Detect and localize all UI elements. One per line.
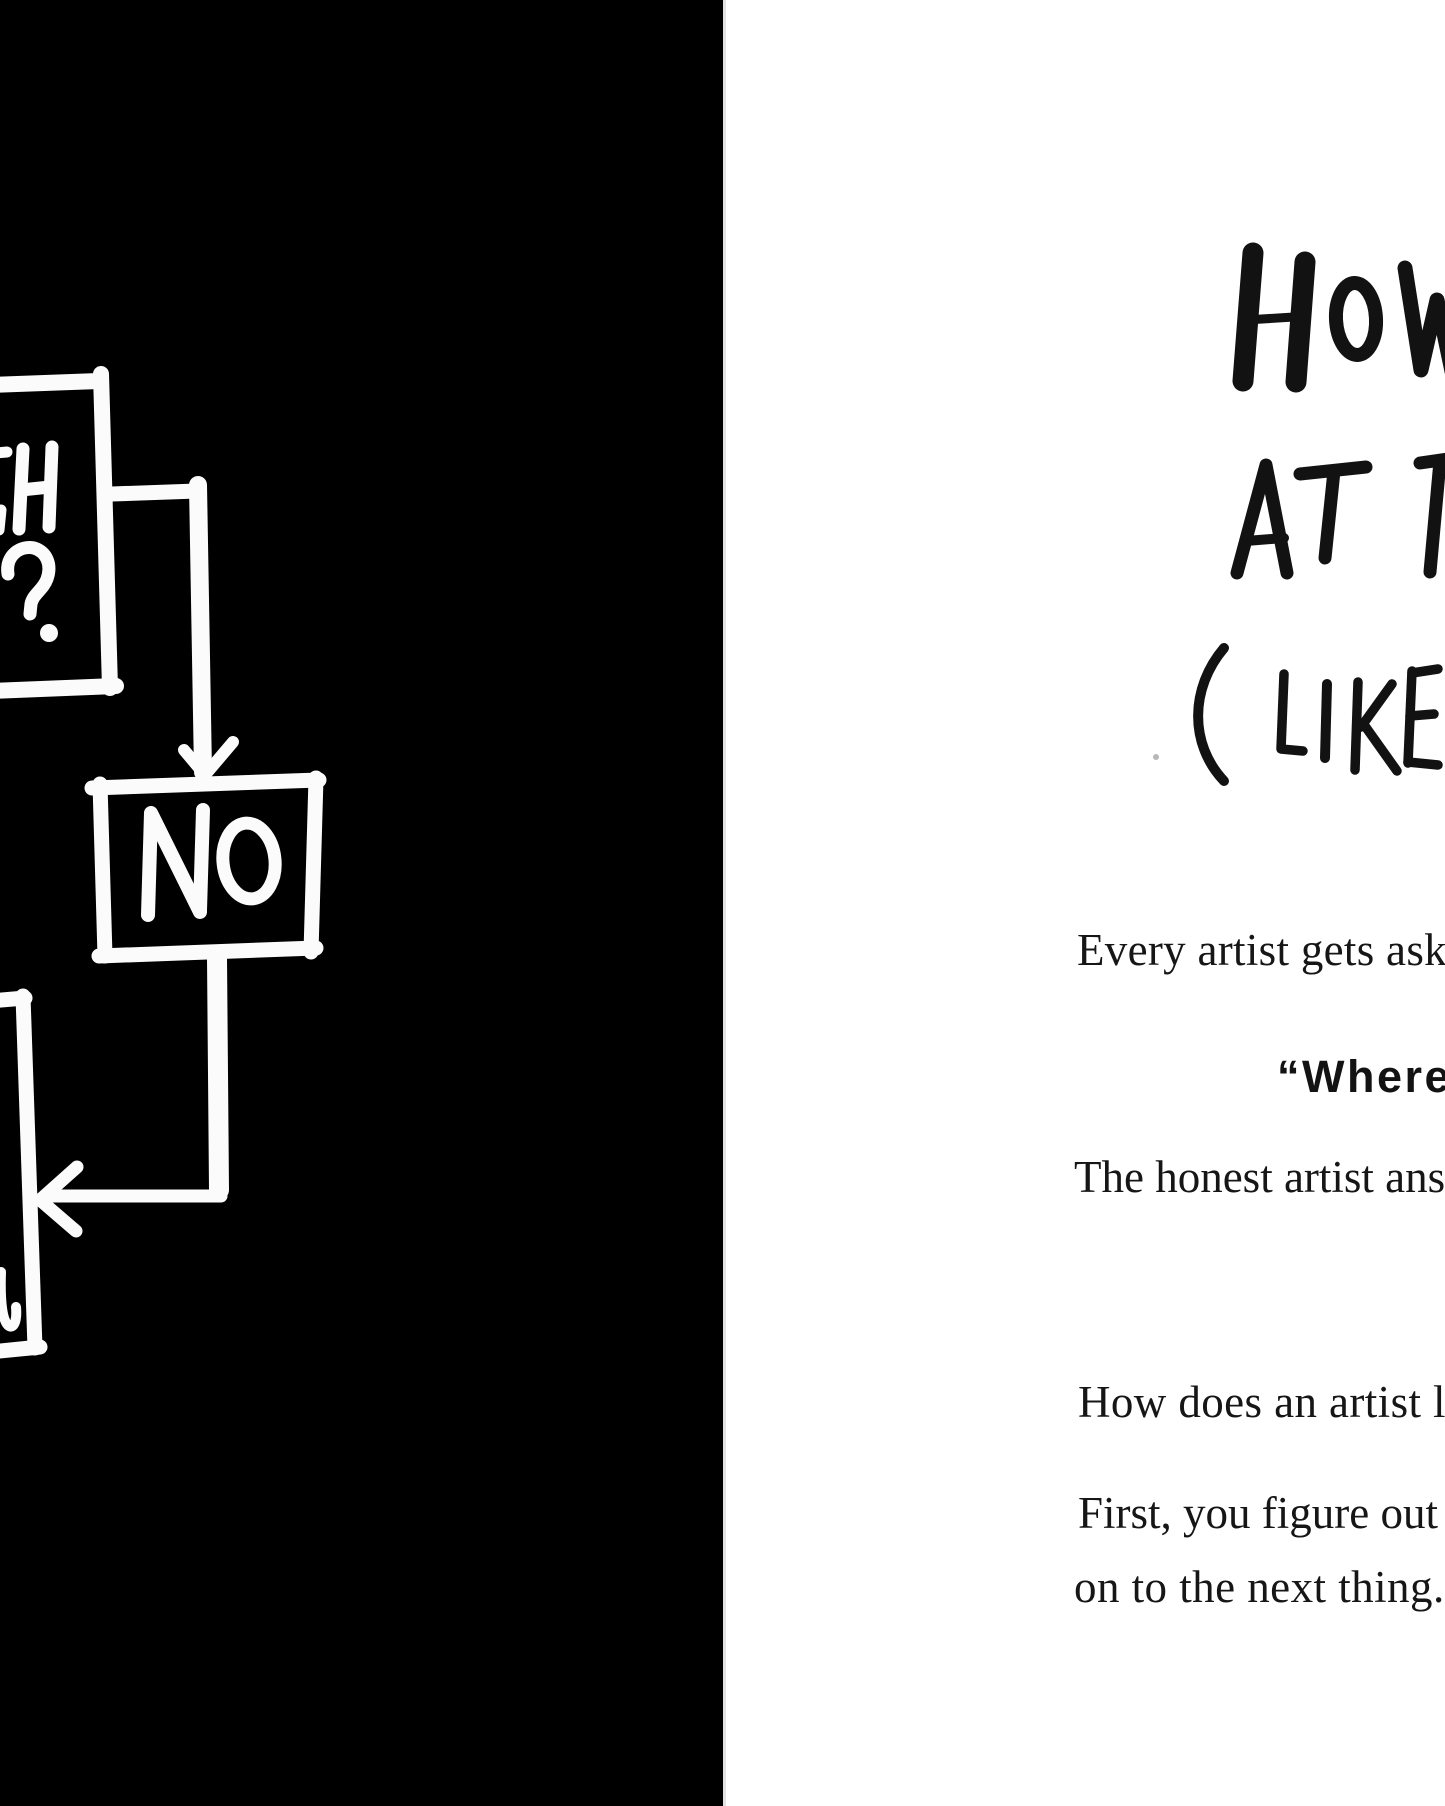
svg-text:“Where do you get your ideas?”: “Where do you get your ideas?” bbox=[1277, 1051, 1445, 1102]
svg-text:The honest artist answers, “I: The honest artist answers, “I steal them… bbox=[1074, 1152, 1445, 1202]
svg-text:How does an artist look at the: How does an artist look at the world? bbox=[1078, 1377, 1445, 1427]
svg-text:First, you figure out what’s w: First, you figure out what’s worth steal… bbox=[1078, 1488, 1445, 1538]
svg-text:Every artist gets asked the qu: Every artist gets asked the question, bbox=[1077, 925, 1445, 975]
svg-text:on to the next thing.: on to the next thing. bbox=[1074, 1562, 1445, 1612]
